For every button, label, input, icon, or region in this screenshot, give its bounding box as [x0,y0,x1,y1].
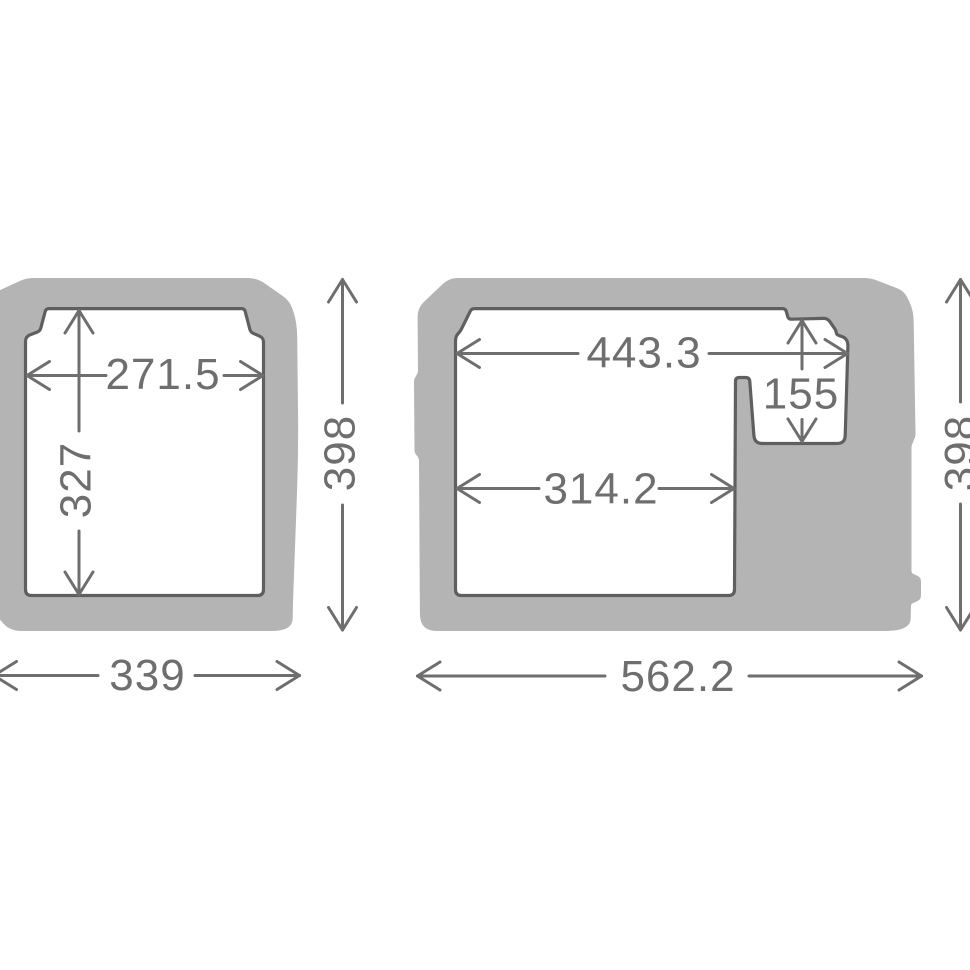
svg-text:271.5: 271.5 [105,350,220,399]
svg-text:398: 398 [936,415,970,491]
svg-text:339: 339 [109,651,185,700]
svg-text:443.3: 443.3 [586,329,701,378]
svg-text:562.2: 562.2 [620,652,735,701]
svg-text:314.2: 314.2 [543,465,658,514]
svg-text:155: 155 [763,370,839,419]
svg-text:398: 398 [316,415,365,491]
svg-text:327: 327 [52,442,101,518]
